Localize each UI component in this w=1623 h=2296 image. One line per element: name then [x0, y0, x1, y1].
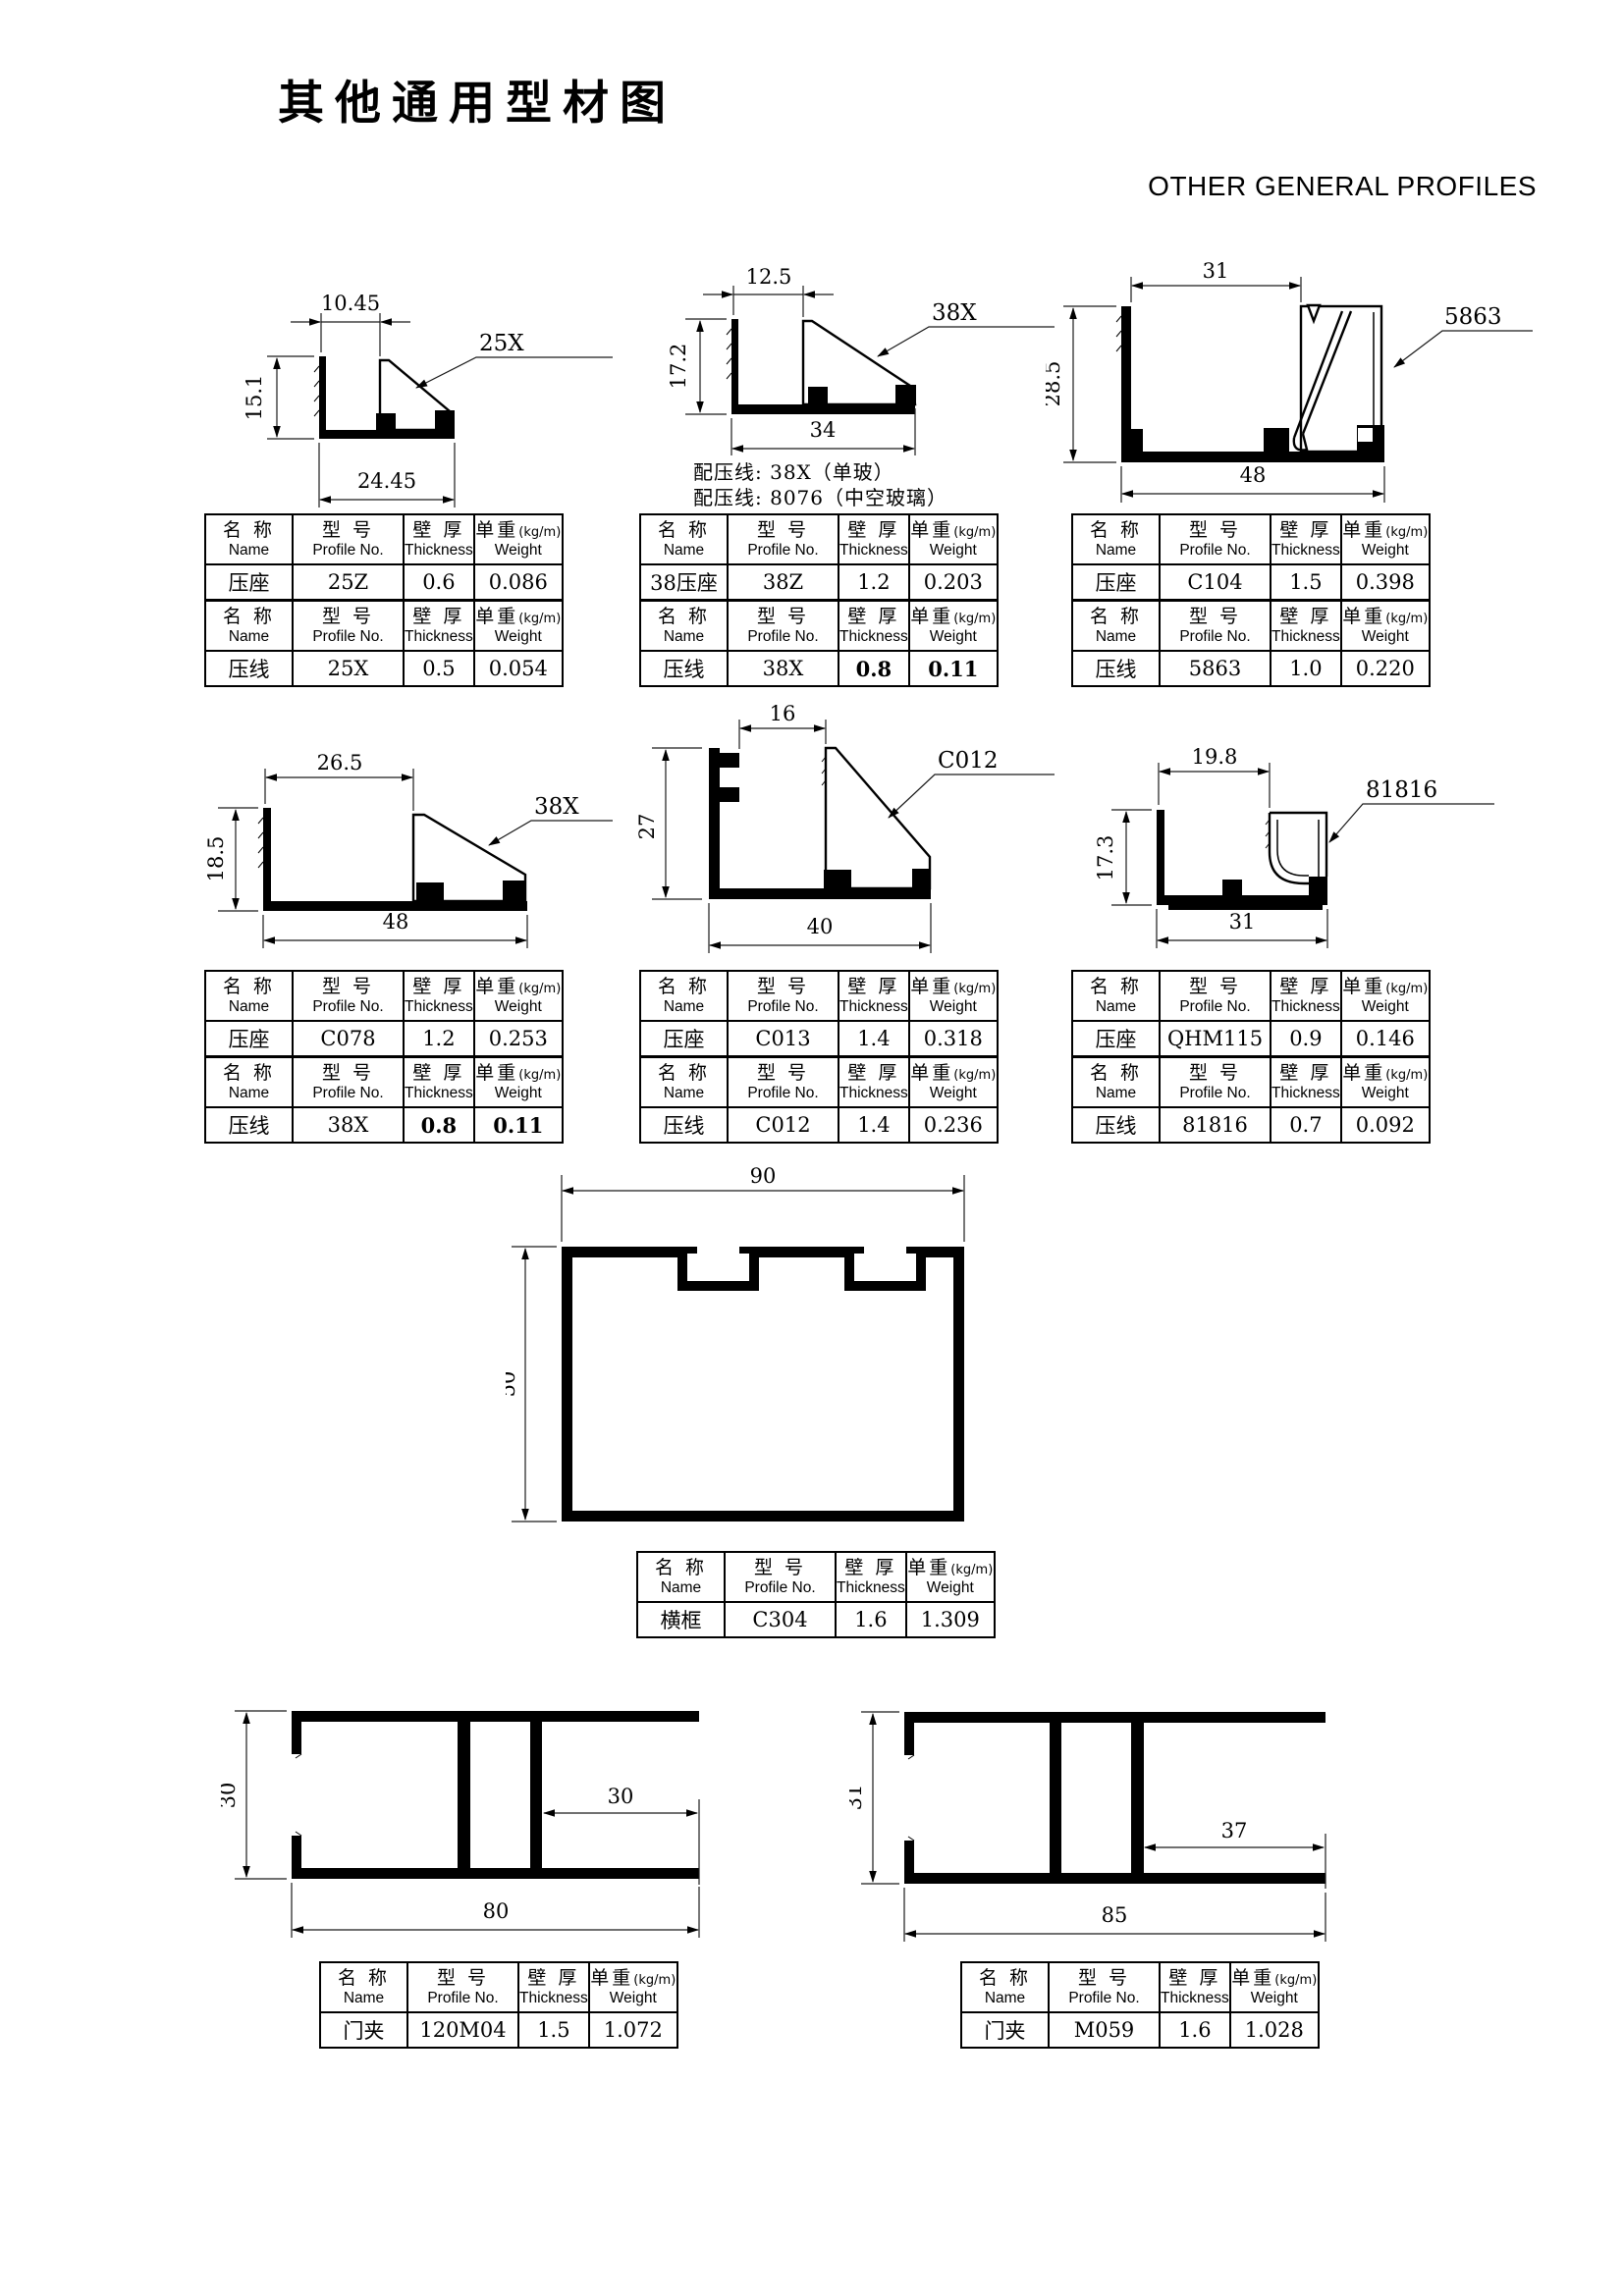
table-header-row: 名 称Name 型 号Profile No. 壁 厚Thickness 单重(k…: [205, 971, 563, 1021]
col-header-name: 名 称Name: [1072, 514, 1160, 564]
pressure-line-notes: 配压线: 38X（单玻） 配压线: 8076（中空玻璃）: [693, 459, 947, 510]
spec-table-c304: 名 称Name 型 号Profile No. 壁 厚Thickness 单重(k…: [636, 1551, 996, 1638]
table-header-row: 名 称Name 型 号Profile No. 壁 厚Thickness 单重(k…: [205, 514, 563, 564]
cell-model: C078: [293, 1021, 404, 1057]
cell-weight: 0.253: [474, 1021, 563, 1057]
dim-bottom-label: 40: [807, 915, 834, 938]
cell-name: 压线: [205, 1107, 293, 1143]
profile-drawing-120m04: 30 30 80: [221, 1698, 771, 1944]
col-header-name-en: Name: [206, 998, 292, 1016]
col-header-name-cn: 名 称: [641, 977, 727, 998]
col-header-thickness-cn: 壁 厚: [1271, 977, 1340, 998]
table-header-row: 名 称Name 型 号Profile No. 壁 厚Thickness 单重(k…: [637, 1552, 995, 1602]
col-header-thickness-en: Thickness: [837, 1579, 905, 1597]
col-header-thickness-en: Thickness: [839, 628, 908, 646]
table-row: 压座 C013 1.4 0.318: [640, 1021, 998, 1057]
col-header-weight-cn: 单重(kg/m): [1342, 607, 1429, 628]
col-header-name-cn: 名 称: [206, 607, 292, 628]
cell-name: 压座: [205, 1021, 293, 1057]
col-header-thickness-en: Thickness: [405, 628, 473, 646]
cell-thickness: 1.2: [404, 1021, 474, 1057]
col-header-model: 型 号Profile No.: [1049, 1962, 1160, 2012]
cell-thickness: 1.6: [1160, 2012, 1230, 2048]
col-header-weight-en: Weight: [1342, 628, 1429, 646]
col-header-thickness-en: Thickness: [405, 542, 473, 560]
dim-left-label: 18.5: [204, 836, 228, 882]
col-header-thickness-en: Thickness: [405, 998, 473, 1016]
col-header-weight-en: Weight: [475, 628, 562, 646]
col-header-name-cn: 名 称: [1073, 977, 1159, 998]
note-line-1: 配压线: 38X（单玻）: [693, 459, 947, 485]
col-header-thickness: 壁 厚Thickness: [839, 514, 909, 564]
col-header-weight: 单重(kg/m)Weight: [474, 601, 563, 652]
cell-name: 压线: [640, 651, 728, 686]
cell-thickness: 0.7: [1271, 1107, 1341, 1143]
profile-shape: [904, 1712, 1325, 1884]
table-row: 压座 QHM115 0.9 0.146: [1072, 1021, 1430, 1057]
col-header-name-en: Name: [1073, 998, 1159, 1016]
col-header-model-cn: 型 号: [729, 977, 838, 998]
table-row: 横框 C304 1.6 1.309: [637, 1602, 995, 1637]
profile-drawing-c304: 90 50: [506, 1163, 1144, 1551]
cell-thickness: 1.5: [518, 2012, 589, 2048]
dim-left-label: 28.5: [1046, 361, 1064, 407]
col-header-thickness: 壁 厚Thickness: [1160, 1962, 1230, 2012]
cell-weight: 0.086: [474, 564, 563, 601]
col-header-weight-en: Weight: [910, 542, 997, 560]
cell-thickness: 0.6: [404, 564, 474, 601]
col-header-model-cn: 型 号: [294, 607, 403, 628]
table-header-row: 名 称Name 型 号Profile No. 壁 厚Thickness 单重(k…: [961, 1962, 1319, 2012]
table-header-row: 名 称Name 型 号Profile No. 壁 厚Thickness 单重(k…: [205, 1057, 563, 1108]
cell-name: 门夹: [961, 2012, 1049, 2048]
col-header-weight: 单重(kg/m)Weight: [909, 971, 998, 1021]
dim-left-label: 30: [221, 1783, 240, 1809]
table-header-row: 名 称Name 型 号Profile No. 壁 厚Thickness 单重(k…: [205, 601, 563, 652]
cell-weight: 1.028: [1230, 2012, 1319, 2048]
dim-left-label: 27: [638, 814, 659, 840]
col-header-thickness: 壁 厚Thickness: [404, 1057, 474, 1108]
cell-weight: 1.072: [589, 2012, 677, 2048]
callout-label: 81816: [1366, 777, 1437, 803]
col-header-name-cn: 名 称: [1073, 1063, 1159, 1085]
col-header-thickness-cn: 壁 厚: [1271, 607, 1340, 628]
callout: 81816: [1329, 777, 1494, 842]
col-header-thickness-cn: 壁 厚: [1271, 520, 1340, 542]
cell-name: 压座: [1072, 564, 1160, 601]
col-header-weight: 单重(kg/m)Weight: [474, 514, 563, 564]
dim-inner-label: 30: [608, 1785, 634, 1808]
dim-left-label: 31: [849, 1785, 866, 1811]
col-header-weight-cn: 单重(kg/m): [475, 1063, 562, 1085]
col-header-weight: 单重(kg/m)Weight: [909, 1057, 998, 1108]
col-header-thickness-en: Thickness: [1161, 1990, 1229, 2007]
col-header-model: 型 号Profile No.: [407, 1962, 518, 2012]
callout: 5863: [1394, 304, 1533, 367]
spec-table-38z-38x: 名 称Name 型 号Profile No. 壁 厚Thickness 单重(k…: [639, 513, 999, 687]
col-header-name: 名 称Name: [205, 1057, 293, 1108]
col-header-name-cn: 名 称: [321, 1968, 406, 1990]
col-header-model-cn: 型 号: [726, 1558, 835, 1579]
spec-table-c013-c012: 名 称Name 型 号Profile No. 壁 厚Thickness 单重(k…: [639, 970, 999, 1144]
col-header-weight: 单重(kg/m)Weight: [589, 1962, 677, 2012]
col-header-model-cn: 型 号: [294, 1063, 403, 1085]
dim-left-label: 15.1: [243, 375, 266, 421]
dim-top-label: 10.45: [321, 292, 380, 315]
col-header-thickness-cn: 壁 厚: [405, 977, 473, 998]
cell-thickness: 1.5: [1271, 564, 1341, 601]
col-header-name-cn: 名 称: [638, 1558, 724, 1579]
col-header-thickness-cn: 壁 厚: [405, 1063, 473, 1085]
col-header-thickness-en: Thickness: [405, 1085, 473, 1102]
page-subtitle: OTHER GENERAL PROFILES: [1148, 171, 1537, 202]
col-header-model-cn: 型 号: [408, 1968, 517, 1990]
col-header-thickness-cn: 壁 厚: [405, 607, 473, 628]
col-header-name: 名 称Name: [637, 1552, 725, 1602]
col-header-name-cn: 名 称: [206, 1063, 292, 1085]
table-row: 压线 38X 0.8 0.11: [205, 1107, 563, 1143]
col-header-model-en: Profile No.: [1161, 542, 1270, 560]
col-header-name-en: Name: [206, 1085, 292, 1102]
col-header-model-cn: 型 号: [1161, 520, 1270, 542]
cell-weight: 0.11: [909, 651, 998, 686]
col-header-model-en: Profile No.: [729, 1085, 838, 1102]
callout-label: 38X: [534, 794, 579, 820]
col-header-name: 名 称Name: [961, 1962, 1049, 2012]
col-header-name-cn: 名 称: [641, 1063, 727, 1085]
cell-model: 120M04: [407, 2012, 518, 2048]
profile-drawing-c013-c012: 16 27 40 C012: [638, 692, 1060, 977]
col-header-model-en: Profile No.: [729, 998, 838, 1016]
cell-model: C104: [1160, 564, 1271, 601]
col-header-thickness: 壁 厚Thickness: [1271, 514, 1341, 564]
cell-weight: 0.203: [909, 564, 998, 601]
col-header-weight-cn: 单重(kg/m): [910, 607, 997, 628]
dim-left-label: 50: [506, 1371, 519, 1398]
callout: C012: [889, 748, 1055, 818]
profile-shape: [258, 808, 527, 911]
callout-label: 38X: [932, 300, 977, 326]
profile-shape: [1157, 810, 1327, 910]
cell-model: QHM115: [1160, 1021, 1271, 1057]
col-header-name: 名 称Name: [1072, 971, 1160, 1021]
cell-model: C012: [728, 1107, 839, 1143]
col-header-model: 型 号Profile No.: [293, 514, 404, 564]
col-header-name-en: Name: [206, 628, 292, 646]
table-row: 压线 81816 0.7 0.092: [1072, 1107, 1430, 1143]
profile-shape: [727, 319, 916, 414]
dim-inner-label: 37: [1221, 1819, 1248, 1842]
col-header-weight: 单重(kg/m)Weight: [1341, 601, 1430, 652]
col-header-weight: 单重(kg/m)Weight: [1230, 1962, 1319, 2012]
dim-left-label: 17.3: [1094, 835, 1117, 881]
cell-name: 38压座: [640, 564, 728, 601]
cell-weight: 0.220: [1341, 651, 1430, 686]
col-header-weight-en: Weight: [475, 542, 562, 560]
col-header-name-cn: 名 称: [641, 520, 727, 542]
dim-left-label: 17.2: [667, 344, 690, 390]
cell-model: 38X: [293, 1107, 404, 1143]
col-header-name-en: Name: [1073, 628, 1159, 646]
cell-model: C304: [725, 1602, 836, 1637]
cell-model: 25Z: [293, 564, 404, 601]
profile-shape: [1116, 305, 1384, 462]
col-header-model-en: Profile No.: [294, 628, 403, 646]
col-header-thickness: 壁 厚Thickness: [404, 971, 474, 1021]
col-header-weight: 单重(kg/m)Weight: [906, 1552, 995, 1602]
col-header-thickness: 壁 厚Thickness: [518, 1962, 589, 2012]
col-header-name: 名 称Name: [205, 514, 293, 564]
table-header-row: 名 称Name 型 号Profile No. 壁 厚Thickness 单重(k…: [640, 1057, 998, 1108]
dimension-annotations: 12.5 17.2 34: [667, 265, 915, 455]
col-header-thickness-en: Thickness: [1271, 998, 1340, 1016]
col-header-thickness-en: Thickness: [519, 1990, 588, 2007]
col-header-model-cn: 型 号: [294, 520, 403, 542]
col-header-name-cn: 名 称: [962, 1968, 1048, 1990]
col-header-thickness-en: Thickness: [1271, 628, 1340, 646]
col-header-name-en: Name: [1073, 542, 1159, 560]
cell-thickness: 0.5: [404, 651, 474, 686]
profile-drawing-c104-5863: 31 28.5 48 5863: [1046, 245, 1537, 515]
cell-model: 38X: [728, 651, 839, 686]
col-header-name-cn: 名 称: [641, 607, 727, 628]
cell-name: 压座: [1072, 1021, 1160, 1057]
col-header-name: 名 称Name: [640, 971, 728, 1021]
callout: 38X: [878, 300, 1055, 356]
spec-table-qhm115-81816: 名 称Name 型 号Profile No. 壁 厚Thickness 单重(k…: [1071, 970, 1431, 1144]
cell-thickness: 1.4: [839, 1021, 909, 1057]
col-header-thickness-en: Thickness: [839, 542, 908, 560]
col-header-weight-cn: 单重(kg/m): [590, 1968, 676, 1990]
col-header-name-en: Name: [641, 998, 727, 1016]
col-header-model-en: Profile No.: [294, 542, 403, 560]
col-header-name-en: Name: [206, 542, 292, 560]
cell-name: 压线: [205, 651, 293, 686]
dimension-annotations: 31 37 85: [849, 1712, 1325, 1942]
col-header-thickness-cn: 壁 厚: [519, 1968, 588, 1990]
col-header-model-en: Profile No.: [1161, 628, 1270, 646]
dim-bottom-label: 85: [1102, 1903, 1128, 1927]
col-header-model-en: Profile No.: [408, 1990, 517, 2007]
col-header-weight-en: Weight: [910, 1085, 997, 1102]
table-header-row: 名 称Name 型 号Profile No. 壁 厚Thickness 单重(k…: [1072, 601, 1430, 652]
col-header-model-en: Profile No.: [729, 542, 838, 560]
col-header-weight-cn: 单重(kg/m): [910, 1063, 997, 1085]
col-header-weight-en: Weight: [910, 998, 997, 1016]
col-header-name-en: Name: [641, 542, 727, 560]
col-header-weight-cn: 单重(kg/m): [910, 977, 997, 998]
col-header-name: 名 称Name: [205, 971, 293, 1021]
callout-label: 25X: [479, 331, 524, 356]
col-header-thickness-cn: 壁 厚: [837, 1558, 905, 1579]
col-header-weight-en: Weight: [910, 628, 997, 646]
col-header-thickness: 壁 厚Thickness: [404, 601, 474, 652]
profile-drawing-m059: 31 37 85: [849, 1698, 1424, 1946]
col-header-model-en: Profile No.: [1050, 1990, 1159, 2007]
col-header-thickness: 壁 厚Thickness: [404, 514, 474, 564]
cell-name: 横框: [637, 1602, 725, 1637]
col-header-thickness-cn: 壁 厚: [839, 520, 908, 542]
table-row: 压座 C104 1.5 0.398: [1072, 564, 1430, 601]
col-header-model: 型 号Profile No.: [1160, 514, 1271, 564]
table-row: 压线 C012 1.4 0.236: [640, 1107, 998, 1143]
col-header-weight: 单重(kg/m)Weight: [1341, 514, 1430, 564]
cell-thickness: 1.6: [836, 1602, 906, 1637]
cell-weight: 0.146: [1341, 1021, 1430, 1057]
cell-thickness: 0.8: [839, 651, 909, 686]
table-row: 压线 5863 1.0 0.220: [1072, 651, 1430, 686]
dimension-annotations: 19.8 17.3 31: [1094, 745, 1327, 948]
col-header-model-cn: 型 号: [729, 1063, 838, 1085]
cell-thickness: 1.0: [1271, 651, 1341, 686]
col-header-weight-en: Weight: [475, 1085, 562, 1102]
cell-thickness: 0.9: [1271, 1021, 1341, 1057]
col-header-weight-en: Weight: [475, 998, 562, 1016]
col-header-model: 型 号Profile No.: [293, 601, 404, 652]
col-header-weight: 单重(kg/m)Weight: [1341, 971, 1430, 1021]
col-header-name: 名 称Name: [640, 514, 728, 564]
col-header-model-cn: 型 号: [294, 977, 403, 998]
col-header-name-cn: 名 称: [1073, 520, 1159, 542]
col-header-weight-cn: 单重(kg/m): [475, 607, 562, 628]
col-header-model: 型 号Profile No.: [293, 971, 404, 1021]
dim-top-label: 12.5: [746, 265, 792, 289]
dim-bottom-label: 48: [1240, 463, 1267, 487]
col-header-thickness-cn: 壁 厚: [839, 1063, 908, 1085]
col-header-thickness: 壁 厚Thickness: [1271, 971, 1341, 1021]
col-header-thickness: 壁 厚Thickness: [836, 1552, 906, 1602]
col-header-model: 型 号Profile No.: [728, 514, 839, 564]
col-header-model-en: Profile No.: [1161, 998, 1270, 1016]
col-header-model-en: Profile No.: [294, 998, 403, 1016]
dim-top-label: 16: [770, 702, 796, 725]
col-header-weight-cn: 单重(kg/m): [910, 520, 997, 542]
col-header-thickness: 壁 厚Thickness: [839, 601, 909, 652]
table-header-row: 名 称Name 型 号Profile No. 壁 厚Thickness 单重(k…: [640, 601, 998, 652]
col-header-weight: 单重(kg/m)Weight: [1341, 1057, 1430, 1108]
table-row: 压线 25X 0.5 0.054: [205, 651, 563, 686]
cell-weight: 0.11: [474, 1107, 563, 1143]
dim-bottom-label: 24.45: [357, 469, 416, 493]
cell-weight: 0.236: [909, 1107, 998, 1143]
dim-top-label: 19.8: [1192, 745, 1238, 769]
col-header-weight-en: Weight: [590, 1990, 676, 2007]
cell-name: 压座: [640, 1021, 728, 1057]
dim-top-label: 90: [750, 1164, 777, 1188]
cell-thickness: 0.8: [404, 1107, 474, 1143]
col-header-model-cn: 型 号: [729, 520, 838, 542]
col-header-name: 名 称Name: [205, 601, 293, 652]
cell-name: 压线: [1072, 1107, 1160, 1143]
col-header-model: 型 号Profile No.: [1160, 1057, 1271, 1108]
col-header-model-cn: 型 号: [1161, 977, 1270, 998]
col-header-weight-cn: 单重(kg/m): [475, 520, 562, 542]
cell-model: C013: [728, 1021, 839, 1057]
dim-bottom-label: 31: [1229, 910, 1256, 934]
col-header-model-en: Profile No.: [726, 1579, 835, 1597]
col-header-model: 型 号Profile No.: [728, 1057, 839, 1108]
col-header-thickness-en: Thickness: [839, 998, 908, 1016]
col-header-thickness-cn: 壁 厚: [1271, 1063, 1340, 1085]
col-header-name: 名 称Name: [320, 1962, 407, 2012]
page: 其他通用型材图 OTHER GENERAL PROFILES 10.45 15.…: [0, 0, 1623, 2296]
spec-table-m059: 名 称Name 型 号Profile No. 壁 厚Thickness 单重(k…: [960, 1961, 1320, 2049]
col-header-weight: 单重(kg/m)Weight: [474, 971, 563, 1021]
col-header-name-cn: 名 称: [206, 520, 292, 542]
col-header-model-en: Profile No.: [294, 1085, 403, 1102]
col-header-weight-en: Weight: [1231, 1990, 1318, 2007]
col-header-thickness-cn: 壁 厚: [1161, 1968, 1229, 1990]
col-header-weight-cn: 单重(kg/m): [1342, 520, 1429, 542]
table-row: 门夹 M059 1.6 1.028: [961, 2012, 1319, 2048]
table-row: 压线 38X 0.8 0.11: [640, 651, 998, 686]
col-header-weight-cn: 单重(kg/m): [1231, 1968, 1318, 1990]
col-header-name-en: Name: [641, 1085, 727, 1102]
cell-model: 38Z: [728, 564, 839, 601]
col-header-weight-cn: 单重(kg/m): [1342, 977, 1429, 998]
col-header-thickness-en: Thickness: [1271, 1085, 1340, 1102]
col-header-thickness-cn: 壁 厚: [405, 520, 473, 542]
col-header-weight: 单重(kg/m)Weight: [909, 601, 998, 652]
table-row: 门夹 120M04 1.5 1.072: [320, 2012, 677, 2048]
col-header-weight-cn: 单重(kg/m): [1342, 1063, 1429, 1085]
col-header-name: 名 称Name: [640, 601, 728, 652]
col-header-weight-en: Weight: [907, 1579, 994, 1597]
spec-table-c104-5863: 名 称Name 型 号Profile No. 壁 厚Thickness 单重(k…: [1071, 513, 1431, 687]
col-header-thickness: 壁 厚Thickness: [1271, 601, 1341, 652]
callout-label: 5863: [1444, 304, 1502, 330]
cell-name: 门夹: [320, 2012, 407, 2048]
col-header-name: 名 称Name: [640, 1057, 728, 1108]
cell-model: 25X: [293, 651, 404, 686]
col-header-thickness: 壁 厚Thickness: [1271, 1057, 1341, 1108]
col-header-weight: 单重(kg/m)Weight: [909, 514, 998, 564]
profile-drawing-qhm115-81816: 19.8 17.3 31 81816: [1060, 726, 1532, 972]
col-header-model-en: Profile No.: [1161, 1085, 1270, 1102]
profile-drawing-c078-38x: 26.5 18.5 48 38X: [196, 712, 619, 972]
col-header-name-en: Name: [638, 1579, 724, 1597]
callout-label: C012: [938, 748, 999, 774]
spec-table-c078-38x: 名 称Name 型 号Profile No. 壁 厚Thickness 单重(k…: [204, 970, 564, 1144]
col-header-name-en: Name: [641, 628, 727, 646]
page-title: 其他通用型材图: [278, 65, 676, 133]
table-header-row: 名 称Name 型 号Profile No. 壁 厚Thickness 单重(k…: [640, 514, 998, 564]
col-header-model-cn: 型 号: [1161, 607, 1270, 628]
spec-table-120m04: 名 称Name 型 号Profile No. 壁 厚Thickness 单重(k…: [319, 1961, 678, 2049]
cell-model: 5863: [1160, 651, 1271, 686]
table-header-row: 名 称Name 型 号Profile No. 壁 厚Thickness 单重(k…: [1072, 514, 1430, 564]
table-row: 压座 C078 1.2 0.253: [205, 1021, 563, 1057]
col-header-model-cn: 型 号: [1050, 1968, 1159, 1990]
profile-shape: [562, 1247, 964, 1522]
col-header-model: 型 号Profile No.: [725, 1552, 836, 1602]
table-row: 压座 25Z 0.6 0.086: [205, 564, 563, 601]
dim-top-label: 26.5: [317, 751, 363, 774]
col-header-name-cn: 名 称: [206, 977, 292, 998]
dimension-annotations: 90 50: [506, 1164, 964, 1522]
note-line-2: 配压线: 8076（中空玻璃）: [693, 485, 947, 510]
cell-model: 81816: [1160, 1107, 1271, 1143]
col-header-name-cn: 名 称: [1073, 607, 1159, 628]
col-header-thickness: 壁 厚Thickness: [839, 971, 909, 1021]
table-row: 38压座 38Z 1.2 0.203: [640, 564, 998, 601]
callout: 25X: [416, 331, 613, 388]
profile-shape: [292, 1711, 699, 1879]
col-header-name-en: Name: [1073, 1085, 1159, 1102]
col-header-name: 名 称Name: [1072, 601, 1160, 652]
profile-shape: [709, 748, 931, 899]
col-header-thickness-en: Thickness: [839, 1085, 908, 1102]
